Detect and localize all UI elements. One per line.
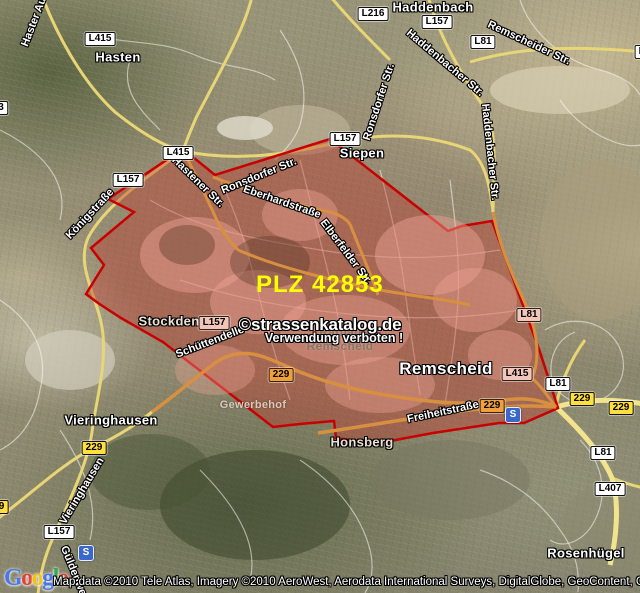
google-logo-letter: o (21, 565, 32, 591)
road-badge-229: 229 (0, 500, 8, 514)
road-badge-229: 229 (82, 441, 107, 455)
map-canvas[interactable]: Haster AuKönigstraßeHastener Str.Ronsdor… (0, 0, 640, 593)
road-badge-l157: L157 (422, 15, 453, 29)
place-label-hasten: Hasten (95, 50, 140, 65)
road-badge-l415: L415 (163, 146, 194, 160)
road-badge-l157: L157 (635, 45, 640, 59)
road-badge-229: 229 (570, 392, 595, 406)
road-badge-l407: L407 (595, 482, 626, 496)
plz-code-label: PLZ 42853 (256, 271, 384, 299)
road-badge-229: 229 (269, 368, 294, 382)
place-label-haddenbach: Haddenbach (392, 0, 473, 15)
place-label-rosenh-gel: Rosenhügel (547, 546, 624, 561)
road-badge-l157: L157 (113, 173, 144, 187)
place-label-siepen: Siepen (340, 146, 384, 161)
watermark-warning: Verwendung verboten ! (265, 331, 403, 345)
road-badge-l81: L81 (516, 308, 541, 322)
google-logo-letter: g (42, 565, 53, 591)
road-badge-l157: L157 (44, 525, 75, 539)
map-attribution: Map data ©2010 Tele Atlas, Imagery ©2010… (53, 576, 640, 588)
road-badge-229: 229 (480, 399, 505, 413)
road-badge-l81: L81 (545, 377, 570, 391)
road-badge-229: 229 (609, 401, 634, 415)
place-label-gewerbehof: Gewerbehof (220, 399, 287, 411)
road-badge-l81: L81 (590, 446, 615, 460)
place-label-stockden: Stockden (139, 314, 200, 329)
place-label-vieringhausen: Vieringhausen (64, 413, 157, 428)
place-label-remscheid: Remscheid (399, 359, 492, 379)
road-badge-l81: L81 (470, 35, 495, 49)
google-logo-letter: o (32, 565, 43, 591)
google-logo-letter: G (4, 565, 21, 591)
road-badge-l157: L157 (330, 132, 361, 146)
road-badge-l415: L415 (502, 367, 533, 381)
road-badge-l216: L216 (358, 7, 389, 21)
station-icon: S (78, 545, 94, 561)
place-label-honsberg: Honsberg (330, 435, 393, 450)
road-badge-3: 3 (0, 101, 8, 115)
station-icon: S (505, 407, 521, 423)
road-badge-l157: L157 (199, 316, 230, 330)
road-badge-l415: L415 (85, 32, 116, 46)
